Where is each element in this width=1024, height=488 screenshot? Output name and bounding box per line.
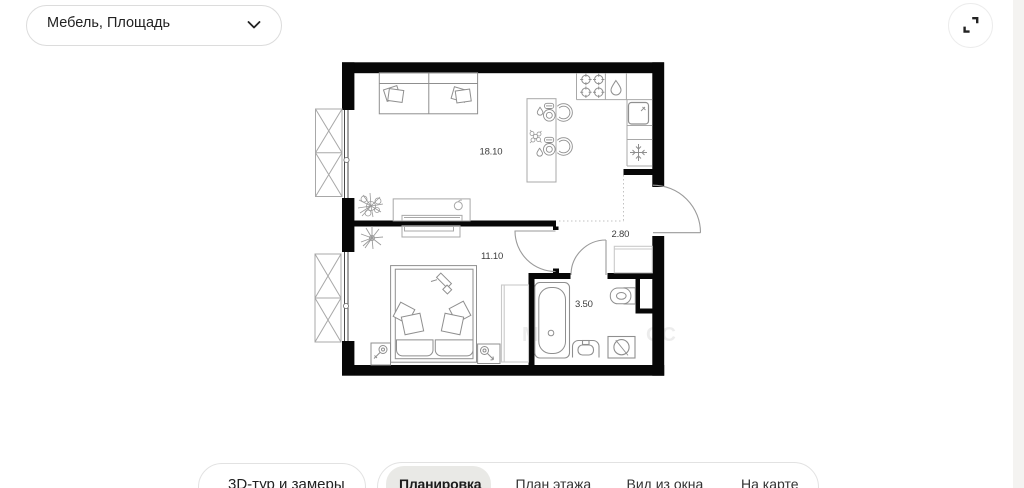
svg-text:3.50: 3.50 (575, 299, 593, 310)
svg-text:18.10: 18.10 (480, 146, 503, 157)
svg-text:11.10: 11.10 (481, 251, 503, 262)
svg-text:2.80: 2.80 (612, 229, 630, 240)
